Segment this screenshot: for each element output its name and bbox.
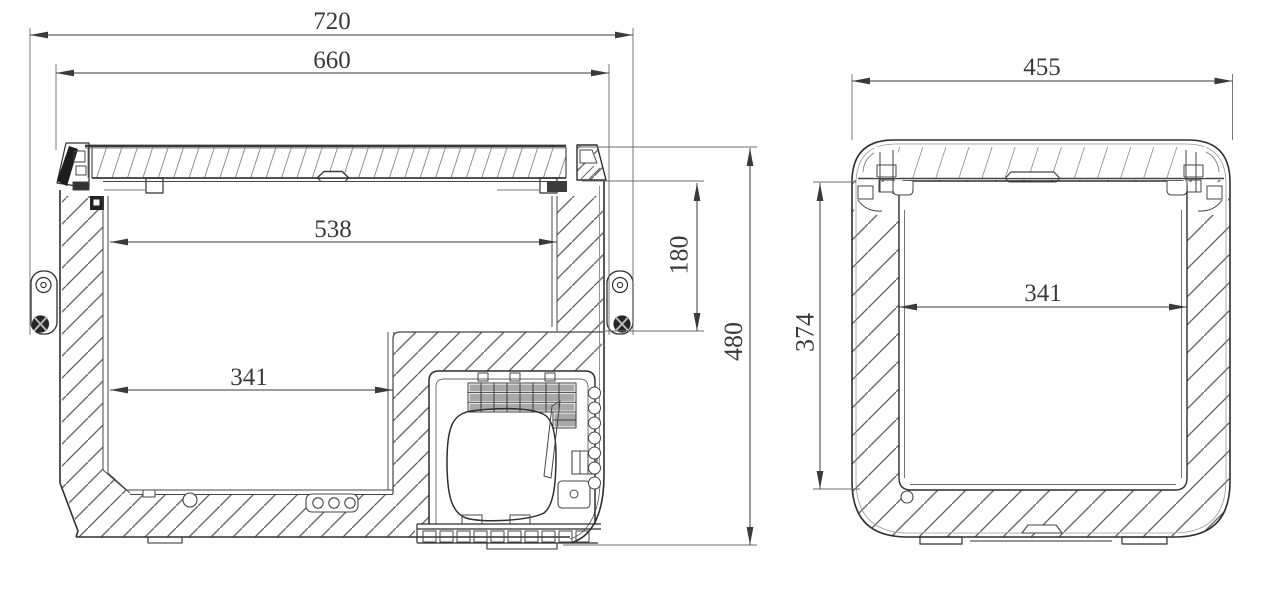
svg-text:341: 341 [1024, 280, 1062, 307]
svg-text:480: 480 [719, 322, 748, 361]
svg-text:374: 374 [790, 313, 819, 352]
svg-text:538: 538 [314, 216, 352, 243]
svg-text:455: 455 [1023, 54, 1061, 81]
svg-text:180: 180 [664, 236, 693, 275]
svg-text:720: 720 [313, 8, 351, 35]
svg-text:341: 341 [230, 364, 268, 391]
svg-text:660: 660 [313, 47, 351, 74]
